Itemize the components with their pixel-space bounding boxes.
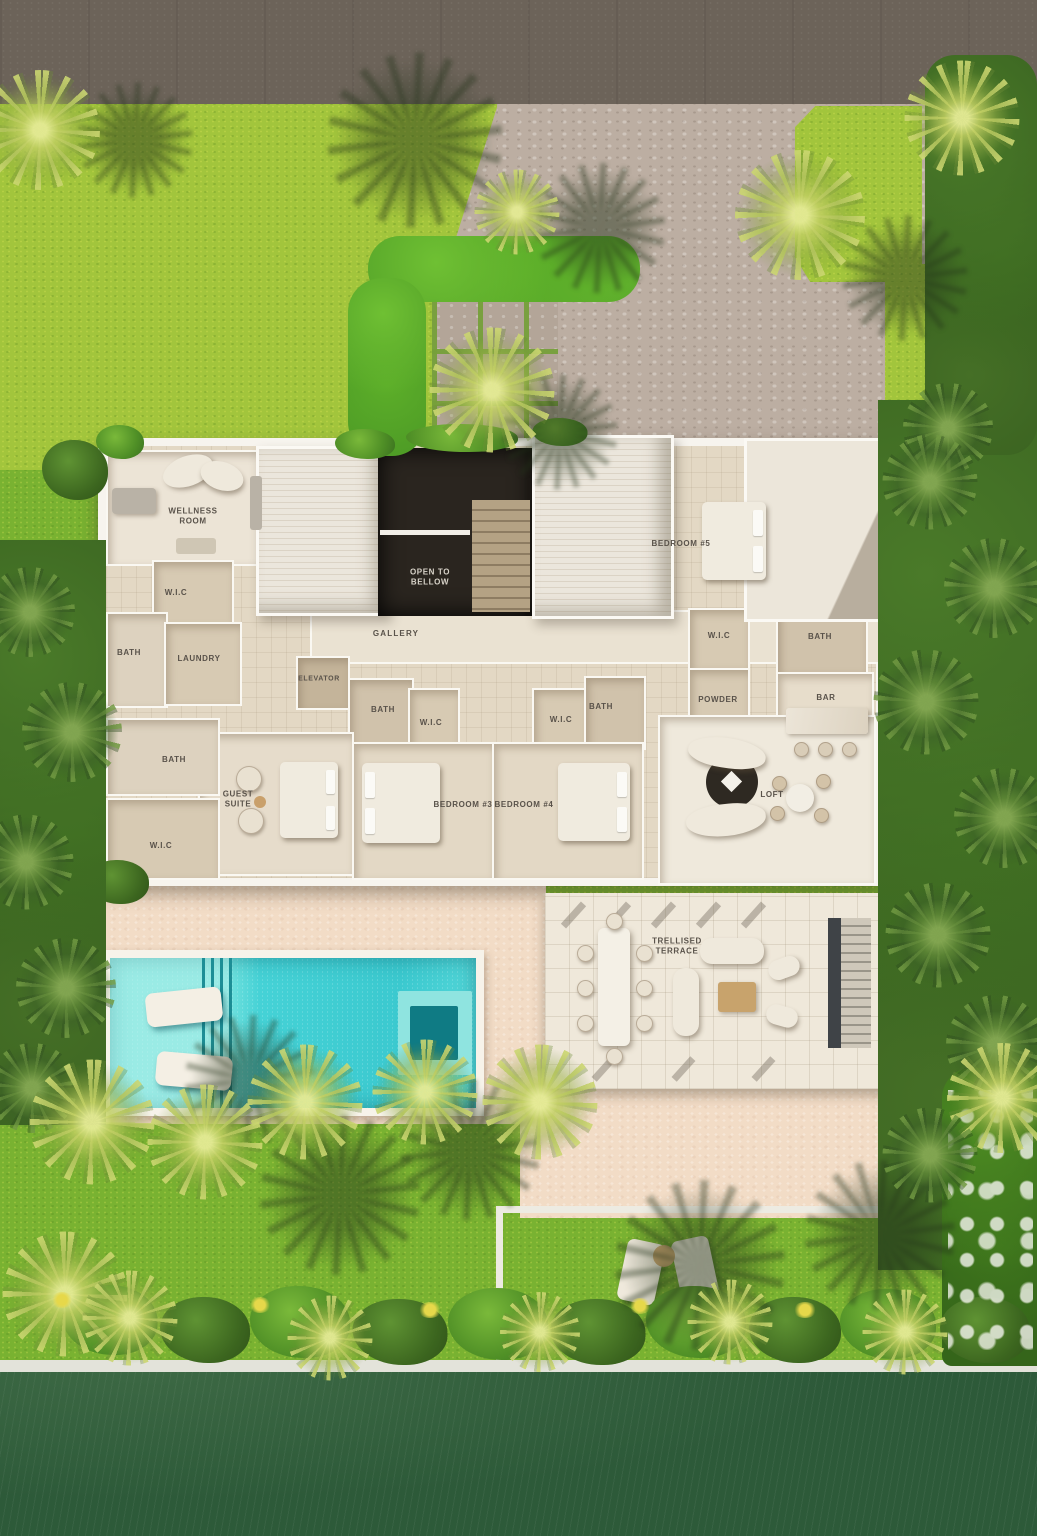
palm-tree <box>288 1296 373 1381</box>
palm-tree <box>883 1108 978 1203</box>
yellow-flowers <box>629 1298 651 1314</box>
palm-tree <box>248 1045 363 1160</box>
wellness-bench <box>176 538 216 554</box>
palm-tree <box>430 328 555 453</box>
armchair <box>238 808 264 834</box>
dining-chair <box>636 980 653 997</box>
room-label-gallery: GALLERY <box>373 629 419 639</box>
palm-tree <box>500 1292 580 1372</box>
room-label-bath-upper-left: BATH <box>117 648 141 658</box>
round-dining-table <box>786 784 814 812</box>
palm-tree <box>30 1060 155 1185</box>
yellow-flowers <box>249 1297 271 1313</box>
palm-tree <box>863 1290 948 1375</box>
dining-chair <box>772 776 787 791</box>
room-label-bath-guest: BATH <box>162 755 186 765</box>
room-label-wic-bedroom-3: W.I.C <box>420 718 443 728</box>
room-label-wellness: WELLNESS ROOM <box>164 507 222 528</box>
bar-stool <box>818 742 833 757</box>
dining-chair <box>606 1048 623 1065</box>
palm-tree <box>944 538 1037 638</box>
room-bath-bedroom-4 <box>584 676 646 750</box>
bar-counter <box>786 708 868 734</box>
pillow <box>753 510 763 536</box>
palm-tree <box>475 170 560 255</box>
outdoor-sofa <box>700 938 764 964</box>
room-label-wic-upper-left: W.I.C <box>165 588 188 598</box>
interior-staircase <box>472 500 530 612</box>
pillow <box>753 546 763 572</box>
outdoor-dining-table <box>598 928 630 1046</box>
wood-coffee-table <box>718 982 756 1012</box>
exterior-staircase <box>841 918 871 1048</box>
palm-tree <box>22 682 122 782</box>
pillow <box>326 806 335 830</box>
palm-tree <box>735 150 865 280</box>
room-label-open-to-bellow: OPEN TO BELLOW <box>405 568 455 589</box>
room-bath-upper-left <box>106 612 168 708</box>
roof-left <box>256 446 388 616</box>
armchair <box>236 766 262 792</box>
palm-tree <box>373 1040 478 1145</box>
bush <box>42 440 108 500</box>
palm-tree <box>886 883 991 988</box>
yellow-flowers <box>418 1302 442 1318</box>
dining-chair <box>814 808 829 823</box>
room-label-guest-suite: GUEST SUITE <box>218 790 258 811</box>
room-label-bedroom-5: BEDROOM #5 <box>652 539 711 549</box>
dining-chair <box>577 945 594 962</box>
bed-bedroom-3 <box>362 763 440 843</box>
palm-tree <box>688 1280 773 1365</box>
room-label-bath-bedroom-5: BATH <box>808 632 832 642</box>
bed-guest-suite <box>280 762 338 838</box>
palm-tree <box>148 1085 263 1200</box>
room-label-bath-bedroom-4: BATH <box>589 702 613 712</box>
bar-stool <box>842 742 857 757</box>
room-label-elevator: ELEVATOR <box>298 674 340 683</box>
palm-tree <box>83 1271 178 1366</box>
dining-chair <box>770 806 785 821</box>
dining-chair <box>636 1015 653 1032</box>
massage-table <box>112 488 156 514</box>
dining-chair <box>577 980 594 997</box>
pillow <box>365 772 375 798</box>
room-label-trellised-terrace: TRELLISED TERRACE <box>647 937 707 958</box>
room-label-bath-bedroom-3: BATH <box>371 705 395 715</box>
room-label-powder: POWDER <box>698 695 738 705</box>
room-label-bedroom-4: BEDROOM #4 <box>495 800 554 810</box>
room-label-laundry: LAUNDRY <box>177 654 220 664</box>
palm-tree <box>483 1045 598 1160</box>
room-label-wic-guest: W.I.C <box>150 841 173 851</box>
room-label-loft: LOFT <box>760 790 783 800</box>
bar-stool <box>794 742 809 757</box>
bush <box>335 429 395 459</box>
palm-tree <box>905 61 1020 176</box>
palm-tree <box>883 435 978 530</box>
pillow <box>326 770 335 794</box>
palm-tree <box>874 650 979 755</box>
bed-bedroom-4 <box>558 763 630 841</box>
room-label-wic-bedroom-5: W.I.C <box>708 631 731 641</box>
pillow <box>617 807 627 832</box>
aerial-site-plan: WELLNESS ROOM W.I.C BATH LAUNDRY GALLERY… <box>0 0 1037 1536</box>
room-label-bar: BAR <box>816 693 835 703</box>
dining-chair <box>577 1015 594 1032</box>
yellow-flowers <box>793 1302 817 1318</box>
palm-tree <box>16 938 116 1038</box>
stair-wall <box>828 918 841 1048</box>
void-bridge-beam <box>380 530 470 535</box>
dining-chair <box>816 774 831 789</box>
dining-chair <box>606 913 623 930</box>
room-label-wic-bedroom-4: W.I.C <box>550 715 573 725</box>
pillow <box>365 808 375 834</box>
yellow-flowers <box>51 1292 73 1308</box>
canal-water <box>0 1372 1037 1536</box>
room-label-bedroom-3: BEDROOM #3 <box>434 800 493 810</box>
bed-bedroom-5 <box>702 502 766 580</box>
exercise-mat <box>250 476 262 530</box>
outdoor-sofa <box>673 968 699 1036</box>
pillow <box>617 772 627 797</box>
